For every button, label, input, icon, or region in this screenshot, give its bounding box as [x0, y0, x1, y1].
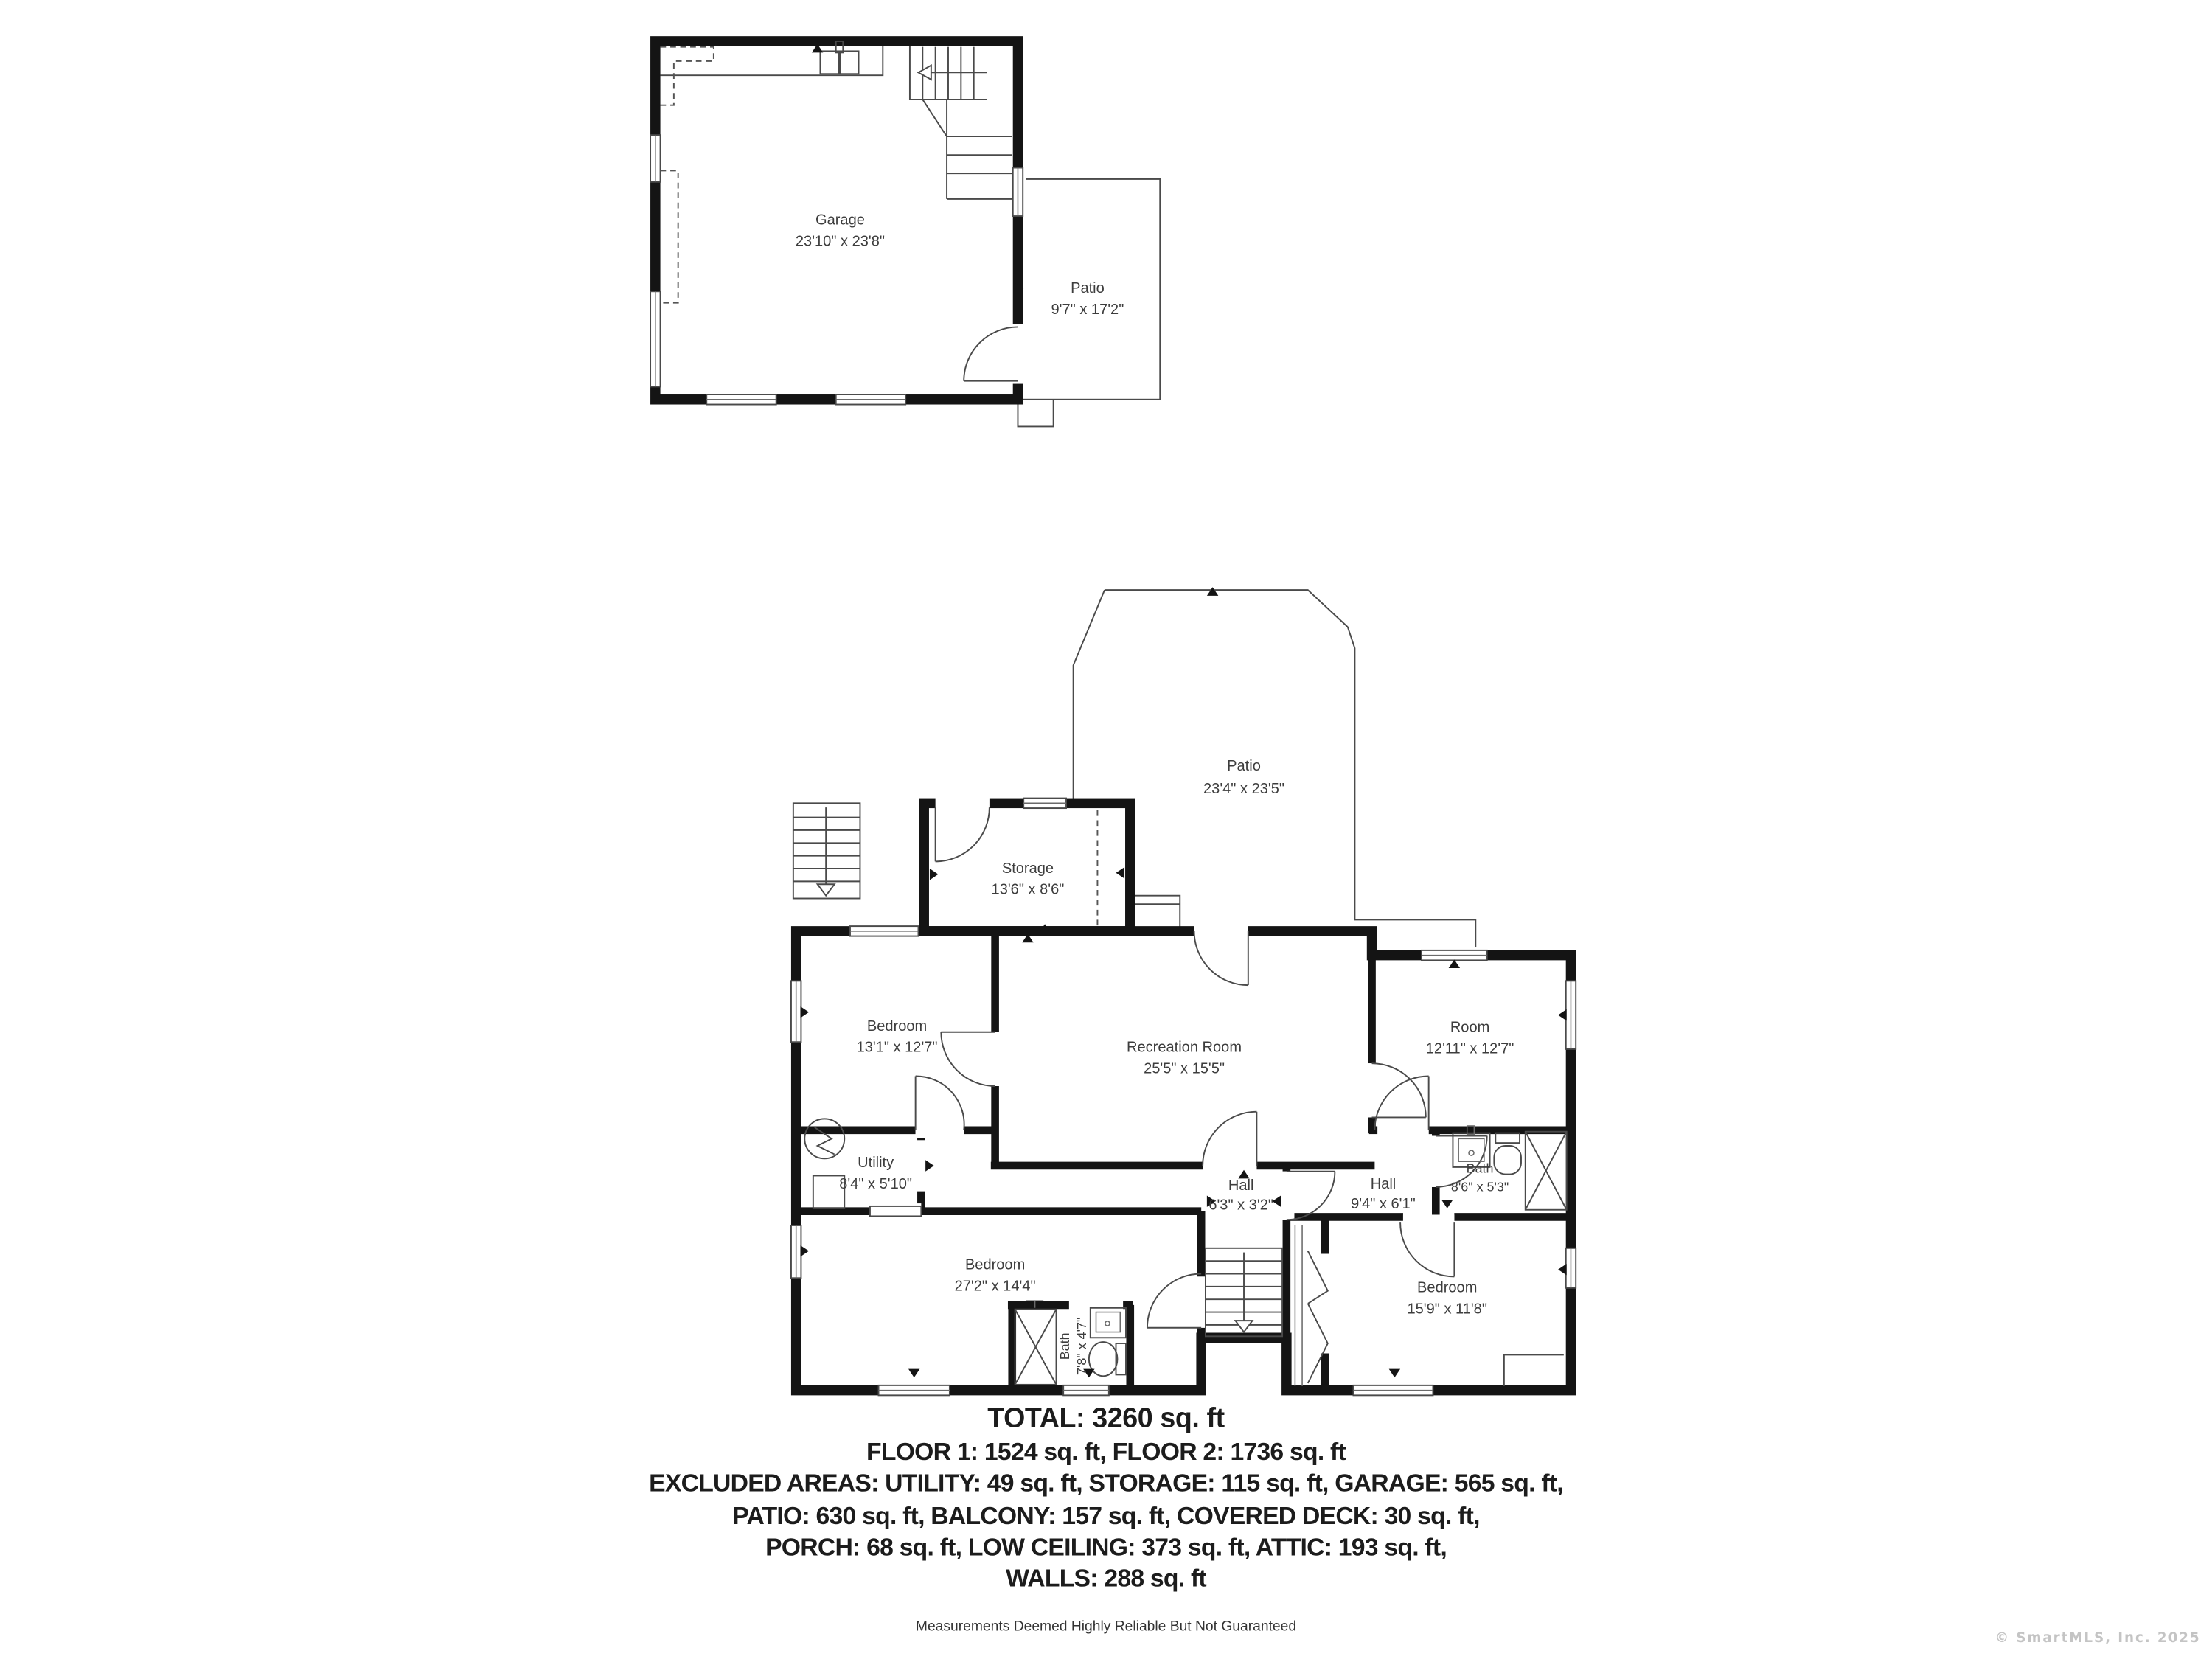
patio1-dims: 23'4" x 23'5" — [1203, 781, 1284, 797]
covered-deck — [1133, 896, 1180, 931]
recreation-dims: 25'5" x 15'5" — [1144, 1061, 1225, 1077]
garage-label: Garage — [815, 212, 865, 229]
recreation-label: Recreation Room — [1127, 1040, 1242, 1056]
bedroom-br-label: Bedroom — [1417, 1280, 1477, 1296]
garage-dims: 23'10" x 23'8" — [796, 234, 885, 250]
watermark-text: © SmartMLS, Inc. 2025 — [1995, 1630, 2201, 1646]
bath-bl-doorway — [1072, 1297, 1121, 1312]
patio2-label: Patio — [1071, 280, 1105, 296]
hall-center-dims: 6'3" x 3'2" — [1208, 1197, 1273, 1214]
utility-label: Utility — [858, 1155, 894, 1171]
floor1-plan: Patio 23'4" x 23'5" Storage 13'6" x 8'6"… — [788, 587, 1579, 1398]
room-tr-dims: 12'11" x 12'7" — [1426, 1041, 1514, 1057]
house-exterior-walls — [796, 931, 1571, 1391]
floor2-plan: Garage 23'10" x 23'8" Patio 9'7" x 17'2" — [647, 41, 1160, 426]
bedroom-tl-dims: 13'1" x 12'7" — [857, 1040, 938, 1056]
disclaimer-text: Measurements Deemed Highly Reliable But … — [916, 1618, 1296, 1634]
bedroom-bl-dims: 27'2" x 14'4" — [955, 1279, 1036, 1295]
exterior-stairs — [793, 803, 860, 898]
hall-right-label: Hall — [1371, 1176, 1397, 1192]
bath-bl-dims: 7'8" x 4'7" — [1074, 1318, 1089, 1375]
summary-floors: FLOOR 1: 1524 sq. ft, FLOOR 2: 1736 sq. … — [866, 1438, 1346, 1466]
summary-walls: WALLS: 288 sq. ft — [1006, 1565, 1206, 1593]
patio1-label: Patio — [1227, 758, 1261, 774]
summary-total: TOTAL: 3260 sq. ft — [987, 1402, 1225, 1433]
bath-bl-label: Bath — [1057, 1332, 1072, 1360]
hall-center-label: Hall — [1228, 1178, 1254, 1194]
summary-block: TOTAL: 3260 sq. ft FLOOR 1: 1524 sq. ft,… — [649, 1402, 1563, 1635]
summary-porch: PORCH: 68 sq. ft, LOW CEILING: 373 sq. f… — [765, 1533, 1447, 1561]
floorplan-page: Garage 23'10" x 23'8" Patio 9'7" x 17'2" — [0, 0, 2212, 1659]
utility-dims: 8'4" x 5'10" — [839, 1176, 912, 1192]
bedroom-bl-label: Bedroom — [965, 1257, 1025, 1273]
bath-right-label: Bath — [1467, 1161, 1494, 1176]
storage-label: Storage — [1002, 860, 1054, 877]
room-tr-label: Room — [1450, 1020, 1489, 1036]
summary-patio: PATIO: 630 sq. ft, BALCONY: 157 sq. ft, … — [732, 1502, 1479, 1530]
summary-excluded: EXCLUDED AREAS: UTILITY: 49 sq. ft, STOR… — [649, 1469, 1563, 1497]
bedroom-br-dims: 15'9" x 11'8" — [1407, 1301, 1486, 1317]
hall-right-dims: 9'4" x 6'1" — [1351, 1196, 1416, 1212]
patio2-dims: 9'7" x 17'2" — [1051, 302, 1124, 318]
bedroom-tl-label: Bedroom — [867, 1018, 927, 1034]
floorplan-canvas: Garage 23'10" x 23'8" Patio 9'7" x 17'2" — [0, 0, 2212, 1659]
exterior-stairs-arrow — [818, 884, 835, 895]
bath-right-dims: 8'6" x 5'3" — [1451, 1180, 1509, 1194]
storage-dims: 13'6" x 8'6" — [992, 882, 1065, 898]
